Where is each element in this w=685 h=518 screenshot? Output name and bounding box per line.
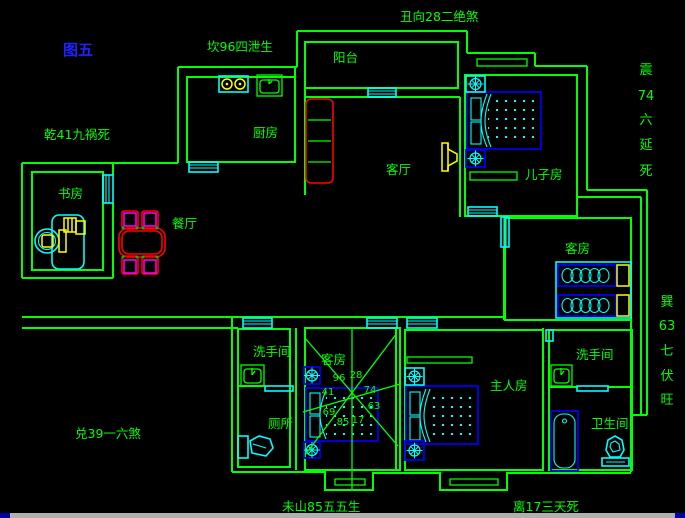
- living-room-fixtures: [306, 99, 457, 183]
- bed-blanket: [488, 97, 537, 144]
- room-label-study: 书房: [58, 186, 83, 201]
- door-bathroom: [577, 386, 608, 391]
- window-washroom-west: [243, 318, 272, 328]
- room-label-living-room: 客厅: [386, 162, 411, 177]
- toilet-tank: [238, 436, 248, 458]
- svg-text:85: 85: [337, 417, 350, 428]
- fengshui-label-northwest: 乾41九祸死: [44, 127, 110, 142]
- cad-floorplan-canvas: 图五 坎96四泄生 丑向28二绝煞 乾41九祸死 兑39一六煞 未山85五五生 …: [0, 0, 685, 518]
- pillow: [617, 265, 629, 286]
- window-master-room: [407, 318, 437, 328]
- svg-text:死: 死: [639, 164, 652, 179]
- svg-text:巽: 巽: [660, 295, 673, 310]
- room-label-washroom-west: 洗手间: [253, 344, 291, 359]
- room-label-balcony: 阳台: [333, 50, 358, 65]
- scrollbar-left-end[interactable]: [0, 513, 10, 518]
- svg-text:28: 28: [350, 370, 363, 381]
- svg-text:旺: 旺: [660, 393, 673, 408]
- figure-number-label: 图五: [63, 41, 93, 59]
- svg-text:17: 17: [352, 415, 365, 426]
- dining-chair: [142, 211, 159, 230]
- kitchen-fixtures: [219, 75, 282, 96]
- door-toilet: [265, 386, 293, 391]
- speaker-icon: [442, 143, 457, 171]
- guest-room-east-furniture: [556, 262, 631, 318]
- dining-chair: [122, 256, 139, 275]
- svg-text:63: 63: [659, 319, 676, 334]
- scrollbar-right-end[interactable]: [675, 513, 685, 518]
- sons-room-walls: [465, 75, 577, 216]
- fengshui-label-southeast-vertical: 巽 63 七 伏 旺: [659, 295, 676, 408]
- svg-text:伏: 伏: [660, 369, 673, 384]
- room-label-kitchen: 厨房: [253, 125, 278, 140]
- balcony-walls: [305, 42, 458, 88]
- svg-text:74: 74: [638, 89, 655, 104]
- svg-text:41: 41: [322, 387, 335, 398]
- dining-chair: [142, 256, 159, 275]
- room-label-bathroom: 卫生间: [591, 416, 629, 431]
- toilet-bowl: [602, 436, 629, 466]
- svg-text:六: 六: [639, 113, 652, 128]
- pillow: [617, 295, 629, 316]
- fengshui-label-northeast: 丑向28二绝煞: [400, 9, 479, 24]
- sons-room-cabinet: [477, 59, 527, 66]
- svg-text:69: 69: [323, 407, 336, 418]
- dining-furniture: [119, 211, 165, 274]
- room-label-washroom-east: 洗手间: [576, 347, 614, 362]
- fengshui-label-west: 兑39一六煞: [75, 426, 141, 441]
- floorplan-drawing: 图五 坎96四泄生 丑向28二绝煞 乾41九祸死 兑39一六煞 未山85五五生 …: [0, 0, 685, 518]
- fengshui-label-east-vertical: 震 74 六 延 死: [638, 63, 655, 179]
- stove: [219, 76, 248, 92]
- master-dresser: [407, 357, 472, 363]
- twin-beds-frame: [556, 262, 631, 318]
- room-label-master-room: 主人房: [490, 378, 528, 393]
- toilet-bowl: [250, 436, 273, 456]
- svg-text:延: 延: [639, 138, 652, 153]
- window-guest-room-south: [367, 318, 397, 328]
- dining-chair: [122, 211, 139, 230]
- bed-blanket: [427, 391, 475, 440]
- fengshui-label-southwest: 未山85五五生: [282, 499, 360, 514]
- svg-text:七: 七: [660, 344, 673, 359]
- room-label-guest-room-east: 客房: [565, 241, 590, 256]
- study-furniture: [35, 215, 85, 269]
- window-kitchen: [189, 162, 218, 172]
- room-label-sons-room: 儿子房: [525, 167, 563, 182]
- washroom-west-fixtures: [241, 365, 264, 386]
- twin-bed: [558, 265, 629, 286]
- planter: [306, 99, 333, 183]
- computer-tower-icon: [59, 230, 66, 252]
- fengshui-label-north: 坎96四泄生: [207, 39, 273, 54]
- window-sons-room: [468, 207, 497, 216]
- fengshui-label-south: 离17三天死: [513, 499, 579, 514]
- sons-room-furniture: [466, 76, 541, 167]
- svg-text:96: 96: [333, 373, 346, 384]
- svg-text:震: 震: [639, 63, 652, 78]
- twin-bed: [558, 295, 629, 316]
- room-label-toilet: 厕所: [268, 416, 293, 431]
- horizontal-scrollbar[interactable]: [0, 513, 685, 518]
- room-label-dining-room: 餐厅: [172, 216, 197, 231]
- door-study: [103, 175, 113, 203]
- fengshui-compass-rays: [303, 328, 400, 490]
- master-room-furniture: [405, 368, 478, 460]
- sons-room-shelf: [470, 172, 517, 180]
- washroom-east-fixtures: [551, 365, 572, 386]
- kitchen-sink: [257, 75, 282, 96]
- room-label-guest-room-south: 客房: [321, 352, 346, 367]
- svg-text:63: 63: [368, 401, 381, 412]
- window-balcony: [368, 88, 396, 97]
- svg-text:74: 74: [364, 385, 377, 396]
- toilet-fixtures: [238, 436, 273, 458]
